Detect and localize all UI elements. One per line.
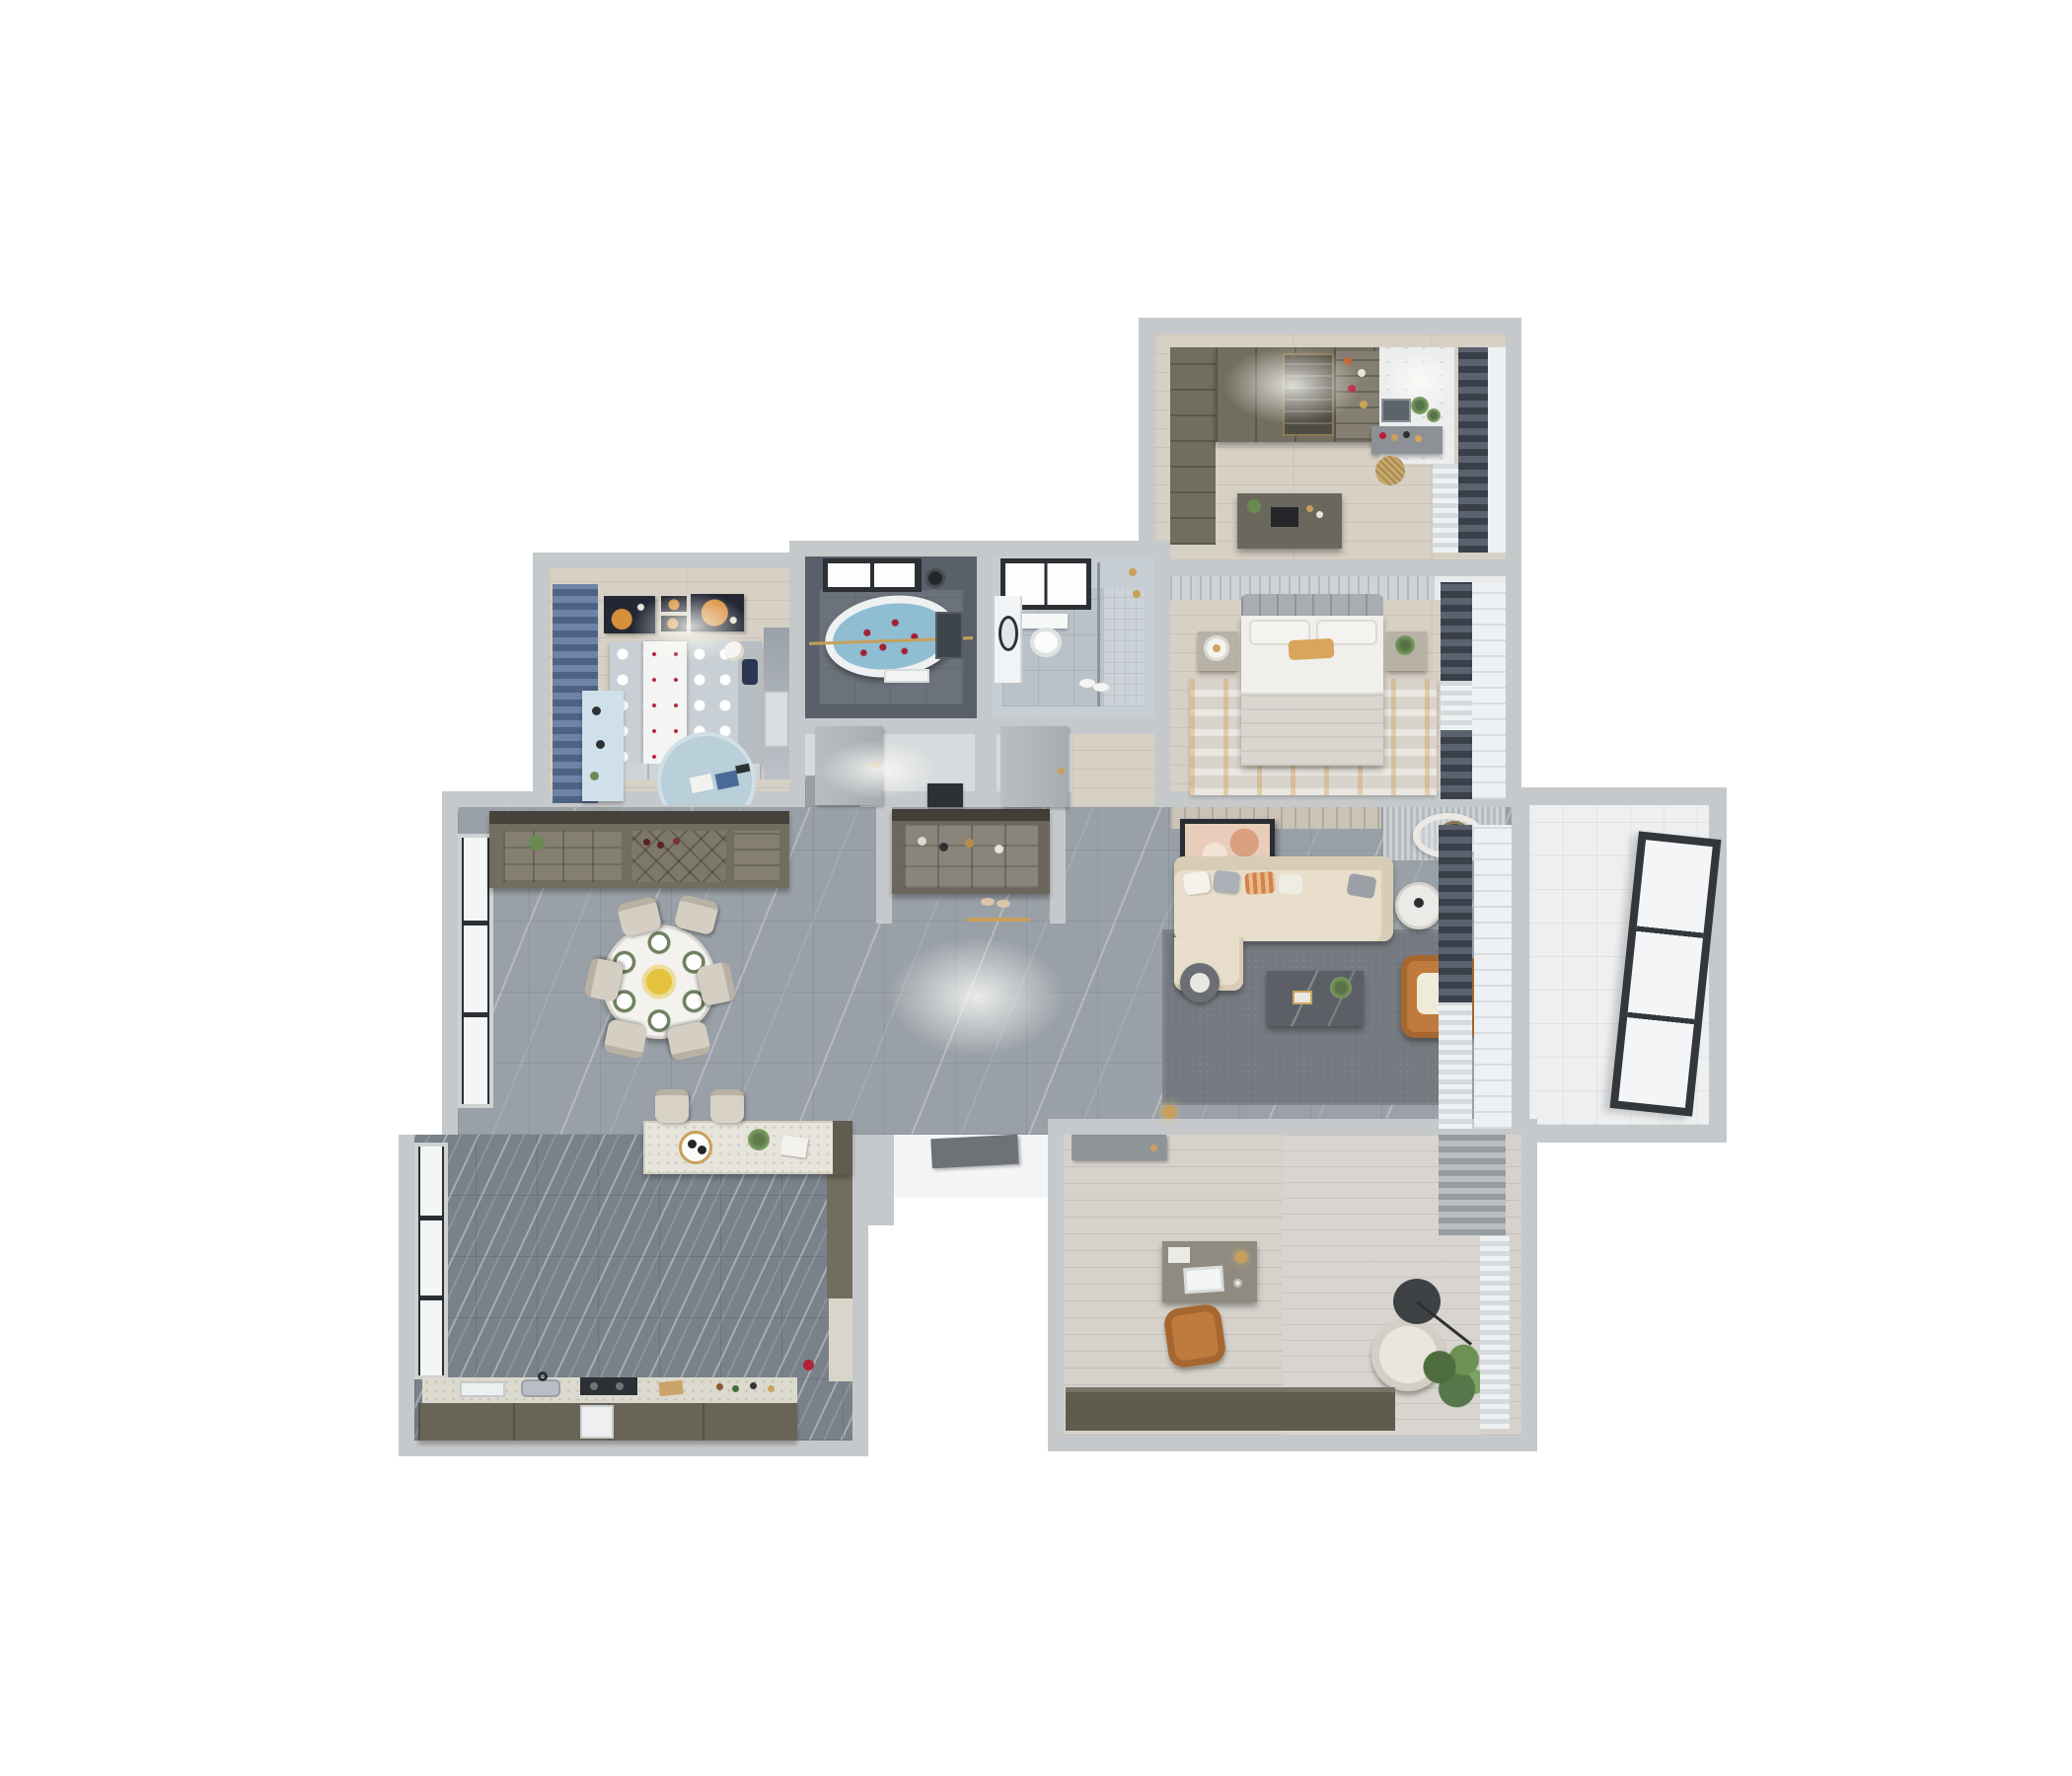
coffee-tray	[679, 1131, 712, 1164]
counter-bottles	[716, 1383, 723, 1390]
small-table-tray	[1190, 973, 1210, 993]
console-decor	[918, 837, 926, 846]
ceiling-glow	[1223, 345, 1362, 424]
living-glass-wall	[1474, 825, 1512, 1129]
desk-cup	[1233, 1279, 1242, 1288]
console-alcove-left-wall	[876, 799, 892, 924]
console-niche	[904, 825, 1038, 888]
kids-desk	[582, 691, 624, 801]
sideboard-plant	[529, 835, 545, 851]
vanity-plant	[1411, 397, 1429, 414]
hall-mid-wall	[975, 734, 997, 807]
closet-curtain-sheer	[1433, 464, 1458, 553]
island-gold-items	[1306, 505, 1313, 512]
sofa-pillow-orange	[1244, 871, 1275, 895]
cosmetics	[1379, 432, 1386, 439]
woven-basket	[1375, 456, 1405, 485]
side-table-candle	[1414, 898, 1424, 908]
hall-light-glow	[819, 740, 937, 799]
vanity-shelf	[1371, 426, 1443, 454]
red-kettle	[803, 1360, 814, 1370]
dish-rack	[460, 1381, 505, 1397]
sofa-pillow	[1183, 870, 1212, 895]
hall-wood-patch	[1072, 734, 1154, 807]
island-tray-black	[1271, 507, 1298, 527]
living-curtain-sheer	[1439, 1002, 1472, 1129]
island-plant	[748, 1129, 770, 1150]
door-handle	[1058, 768, 1065, 775]
cooktop-burners	[590, 1382, 598, 1390]
dishwasher	[580, 1405, 614, 1439]
desk-tray	[1168, 1247, 1190, 1263]
island-plant-small	[1247, 499, 1261, 513]
brass-threshold	[967, 918, 1030, 922]
coffee-table-plant	[1330, 977, 1352, 999]
towel	[884, 669, 929, 683]
sofa-pillow	[1346, 873, 1376, 900]
shower-head	[925, 568, 945, 588]
coffee-cups	[688, 1140, 697, 1148]
living-curtain-dark	[1439, 825, 1472, 1002]
shower-zone	[1103, 588, 1145, 706]
office-curtain	[1439, 1135, 1506, 1235]
kitchen-sink	[521, 1379, 560, 1397]
bath-window	[823, 558, 922, 592]
sideboard-shelf-left	[503, 831, 622, 882]
nightstand-plant	[1395, 635, 1415, 655]
sideboard-shelf-right	[734, 831, 779, 882]
slippers	[981, 898, 995, 906]
master-curtain	[1441, 582, 1472, 681]
floor-plan-render	[0, 0, 2072, 1776]
desk-items	[592, 706, 601, 715]
bedroom-door	[1000, 726, 1068, 807]
closet-curtain	[1458, 347, 1488, 553]
lamp-bulb	[1213, 644, 1221, 652]
sofa-pillow	[1278, 873, 1303, 895]
office-curtain-sheer	[1480, 1235, 1510, 1429]
toilet-tank	[1022, 614, 1068, 629]
bath-slippers	[1079, 679, 1095, 688]
island-board	[780, 1135, 809, 1157]
office-plant	[1419, 1338, 1488, 1411]
console-alcove-right-wall	[1050, 799, 1066, 924]
bath-niche-shelf	[935, 612, 963, 659]
sofa-pillow	[1213, 870, 1240, 895]
sofa	[1174, 856, 1393, 941]
closet-wardrobe-left	[1170, 347, 1216, 545]
brass-shower-fixture	[1129, 568, 1137, 576]
dining-window	[458, 834, 493, 1108]
bed-accent-pillow	[1289, 638, 1335, 660]
door-handle	[1150, 1145, 1157, 1151]
floor-lamp-gold	[1162, 1105, 1176, 1119]
bar-stool	[710, 1089, 744, 1123]
closet-glass-wall	[1488, 347, 1506, 553]
vanity-mirror	[1381, 399, 1411, 422]
kitchen-tall-cabinet	[827, 1172, 852, 1298]
desk-lamp	[1235, 1251, 1247, 1263]
foyer-light-glow	[888, 937, 1066, 1056]
coffee-table	[1267, 971, 1364, 1026]
bed-headboard	[1241, 594, 1383, 616]
coffee-table-tray	[1293, 991, 1312, 1004]
bed-blanket	[1241, 693, 1383, 766]
toilet-bowl	[1030, 628, 1062, 657]
kitchen-island-end-panel	[833, 1121, 852, 1174]
kitchen-window	[414, 1143, 448, 1379]
master-curtain-sheer	[1441, 681, 1472, 730]
kitchen-island	[643, 1121, 852, 1174]
master-curtain	[1441, 730, 1472, 799]
office-cabinet	[1066, 1387, 1395, 1431]
entry-door	[930, 1135, 1018, 1169]
vanity-plant	[1427, 408, 1441, 422]
sideboard-top-beam	[489, 811, 789, 824]
laptop	[1183, 1266, 1224, 1295]
cutting-board	[658, 1380, 683, 1396]
navy-pillow	[742, 659, 758, 685]
wardrobe-toy-niche	[764, 691, 789, 748]
entry-nook-left-wall	[868, 1135, 894, 1225]
wash-basin	[999, 616, 1018, 651]
console-top-beam	[892, 809, 1050, 821]
office-chair	[1162, 1302, 1227, 1369]
faucet	[538, 1371, 548, 1381]
cooktop	[580, 1377, 637, 1395]
master-glass-wall	[1472, 582, 1506, 799]
wine-bottles	[643, 839, 650, 846]
shower-glass	[1097, 562, 1100, 706]
kids-light-glow	[631, 592, 750, 661]
bar-stool	[655, 1089, 689, 1123]
